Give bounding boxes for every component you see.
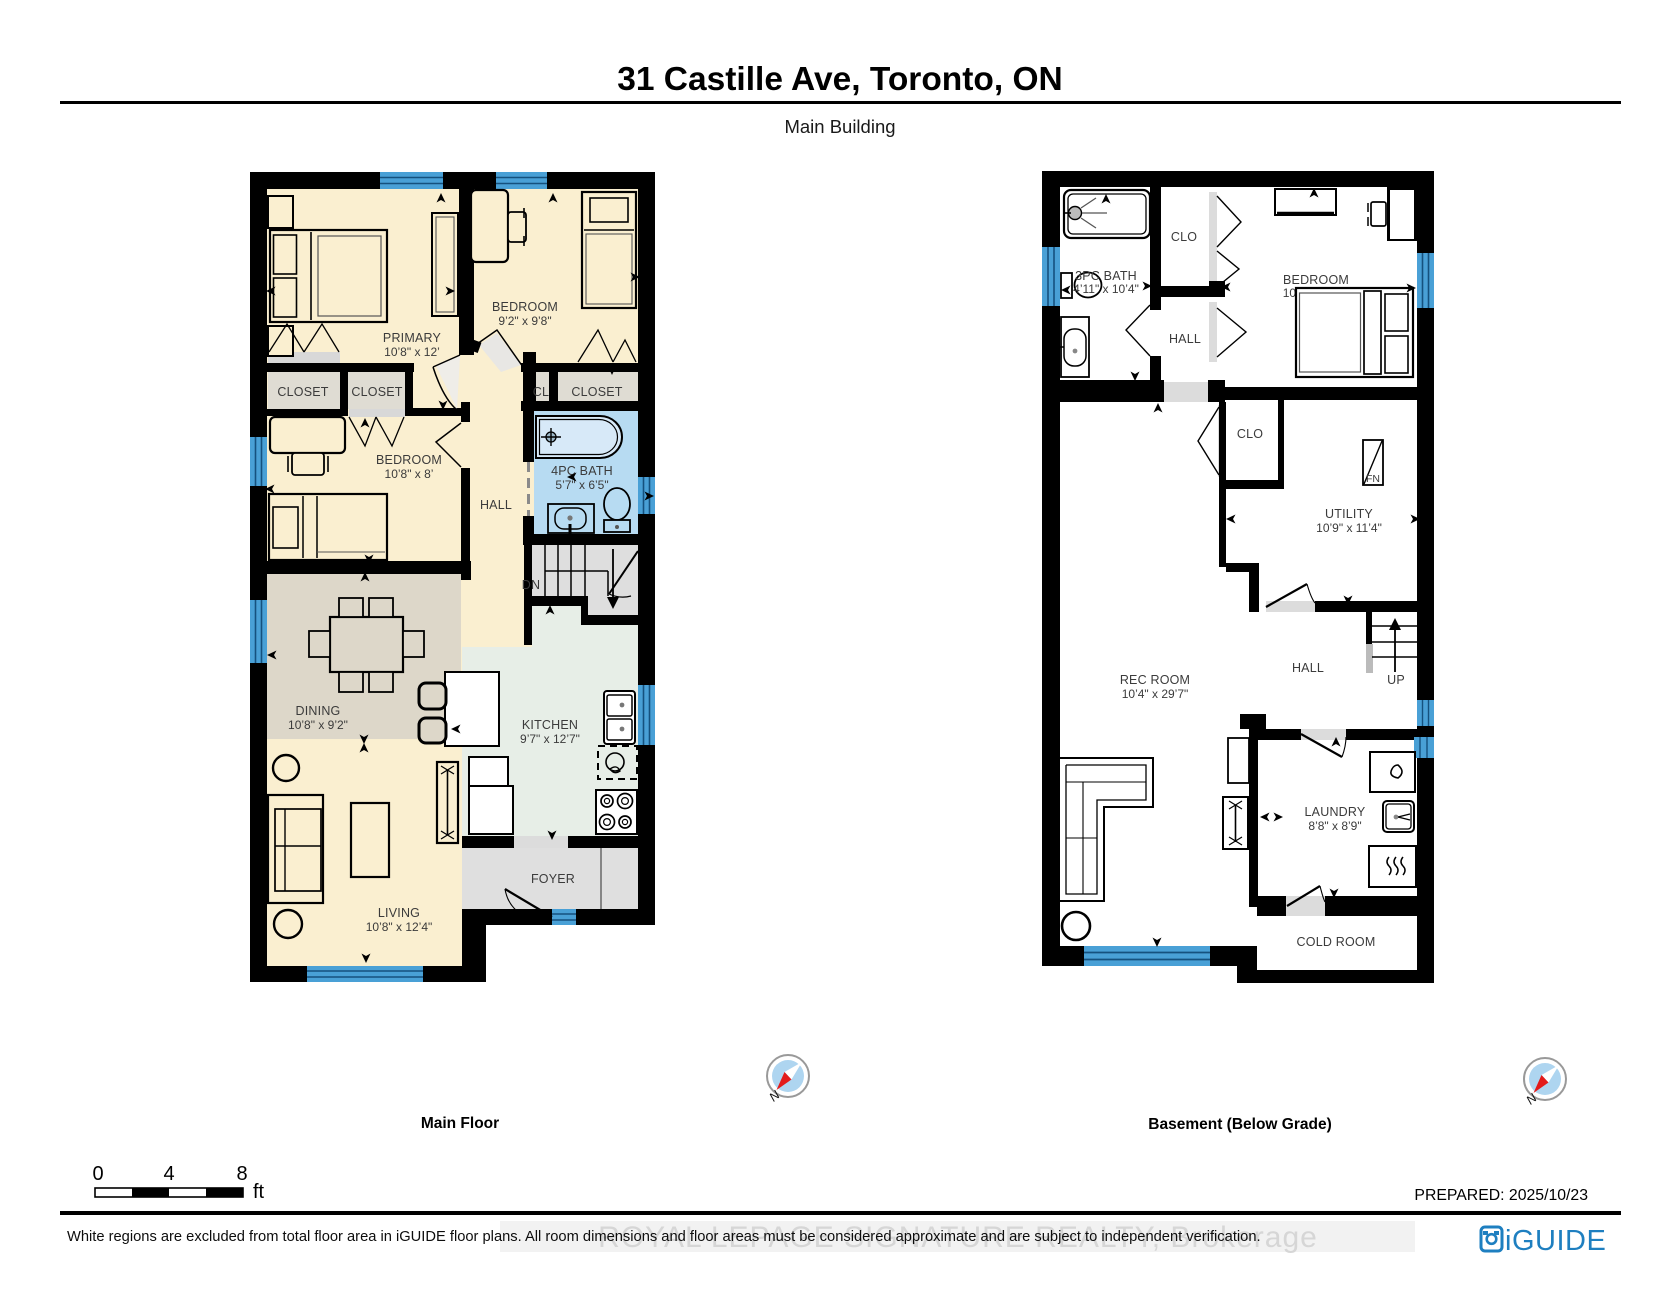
svg-text:Main Floor: Main Floor bbox=[421, 1115, 499, 1132]
svg-text:10’9" x 11’4": 10’9" x 11’4" bbox=[1316, 521, 1382, 535]
svg-text:10’4" x 29’7": 10’4" x 29’7" bbox=[1122, 687, 1189, 701]
svg-text:5’7" x 6’5": 5’7" x 6’5" bbox=[555, 478, 608, 492]
svg-text:10’8" x 12’4": 10’8" x 12’4" bbox=[366, 920, 433, 934]
svg-text:Main Building: Main Building bbox=[784, 116, 895, 137]
svg-text:LIVING: LIVING bbox=[378, 906, 420, 920]
svg-text:CL: CL bbox=[533, 385, 549, 399]
svg-text:8’8" x 8’9": 8’8" x 8’9" bbox=[1308, 819, 1361, 833]
svg-text:0: 0 bbox=[92, 1163, 103, 1185]
svg-text:UTILITY: UTILITY bbox=[1325, 507, 1373, 521]
svg-text:3PC BATH: 3PC BATH bbox=[1075, 269, 1137, 283]
svg-text:FOYER: FOYER bbox=[531, 872, 575, 886]
svg-text:4’11" x 10’4": 4’11" x 10’4" bbox=[1073, 282, 1139, 296]
svg-text:COLD ROOM: COLD ROOM bbox=[1297, 935, 1376, 949]
svg-text:BEDROOM: BEDROOM bbox=[376, 453, 442, 467]
svg-text:CLOSET: CLOSET bbox=[351, 385, 402, 399]
svg-text:ft: ft bbox=[253, 1181, 265, 1203]
svg-text:DN: DN bbox=[522, 578, 540, 592]
svg-text:9’7" x 12’7": 9’7" x 12’7" bbox=[520, 732, 580, 746]
svg-text:PREPARED: 2025/10/23: PREPARED: 2025/10/23 bbox=[1414, 1187, 1588, 1204]
svg-text:KITCHEN: KITCHEN bbox=[522, 718, 578, 732]
svg-text:8: 8 bbox=[236, 1163, 247, 1185]
svg-text:PRIMARY: PRIMARY bbox=[383, 331, 442, 345]
svg-text:10’8" x 12’: 10’8" x 12’ bbox=[384, 345, 440, 359]
svg-text:10’8" x 8’: 10’8" x 8’ bbox=[385, 467, 434, 481]
svg-text:CLOSET: CLOSET bbox=[571, 385, 622, 399]
svg-text:HALL: HALL bbox=[1292, 661, 1324, 675]
svg-text:HALL: HALL bbox=[1169, 332, 1201, 346]
svg-text:BEDROOM: BEDROOM bbox=[492, 300, 558, 314]
svg-text:FN: FN bbox=[1366, 473, 1380, 485]
svg-text:HALL: HALL bbox=[480, 498, 512, 512]
svg-text:CLO: CLO bbox=[1171, 230, 1197, 244]
svg-text:DINING: DINING bbox=[296, 704, 341, 718]
svg-text:4PC BATH: 4PC BATH bbox=[551, 464, 613, 478]
svg-text:9’2" x 9’8": 9’2" x 9’8" bbox=[498, 314, 551, 328]
svg-text:REC ROOM: REC ROOM bbox=[1120, 673, 1190, 687]
svg-text:White regions are excluded fro: White regions are excluded from total fl… bbox=[67, 1229, 1261, 1245]
svg-text:Basement (Below Grade): Basement (Below Grade) bbox=[1148, 1116, 1331, 1133]
svg-text:10’8" x 9’2": 10’8" x 9’2" bbox=[288, 718, 348, 732]
svg-text:UP: UP bbox=[1387, 673, 1405, 687]
svg-text:4: 4 bbox=[163, 1163, 174, 1185]
svg-text:iGUIDE: iGUIDE bbox=[1505, 1225, 1606, 1257]
svg-text:CLOSET: CLOSET bbox=[277, 385, 328, 399]
svg-text:BEDROOM: BEDROOM bbox=[1283, 273, 1349, 287]
svg-text:31 Castille Ave, Toronto, ON: 31 Castille Ave, Toronto, ON bbox=[617, 61, 1063, 98]
svg-text:LAUNDRY: LAUNDRY bbox=[1305, 805, 1366, 819]
svg-text:CLO: CLO bbox=[1237, 427, 1263, 441]
